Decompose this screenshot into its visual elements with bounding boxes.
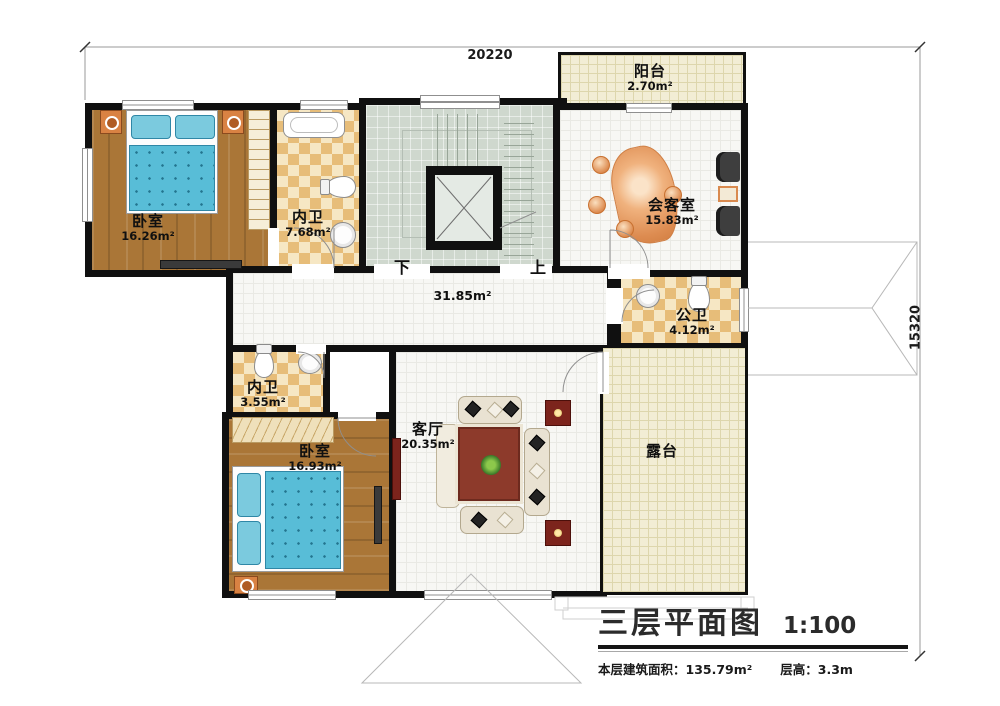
plan-title: 三层平面图 <box>598 598 763 642</box>
label-living: 客厅 20.35m² <box>382 420 474 452</box>
dimension-ticks <box>80 42 925 661</box>
label-stairs-down: 下 <box>394 254 410 278</box>
label-bedroom-bottom: 卧室 16.93m² <box>268 442 362 474</box>
label-bath-bottom: 内卫 3.55m² <box>222 378 304 410</box>
plan-scale: 1:100 <box>783 613 856 639</box>
dimension-width: 20220 <box>450 48 530 63</box>
title-block: 三层平面图 1:100 本层建筑面积：135.79m² 层高：3.3m <box>598 598 933 678</box>
label-bath-top: 内卫 7.68m² <box>270 208 346 240</box>
floor-height-label: 层高：3.3m <box>780 659 853 678</box>
title-rule-thick <box>598 645 908 649</box>
title-rule-thin <box>598 651 908 652</box>
label-reception: 会客室 15.83m² <box>620 196 724 228</box>
title-info-row: 本层建筑面积：135.79m² 层高：3.3m <box>598 659 933 678</box>
floor-area-label: 本层建筑面积：135.79m² <box>598 659 752 678</box>
elevator-cross <box>437 177 491 239</box>
label-public-bath: 公卫 4.12m² <box>650 306 734 338</box>
label-stairs-up: 上 <box>530 254 546 278</box>
floor-plan-canvas: 阳台 2.70m² 卧室 16.26m² 内卫 7.68m² 会客室 15.83… <box>0 0 1000 706</box>
dimension-height: 15320 <box>909 294 924 362</box>
title-row: 三层平面图 1:100 <box>598 598 933 642</box>
label-bedroom-top: 卧室 16.26m² <box>100 212 196 244</box>
label-terrace: 露台 <box>622 442 702 460</box>
door-swings <box>294 212 654 456</box>
label-corridor-area: 31.85m² <box>405 288 520 303</box>
label-balcony: 阳台 2.70m² <box>598 62 702 94</box>
